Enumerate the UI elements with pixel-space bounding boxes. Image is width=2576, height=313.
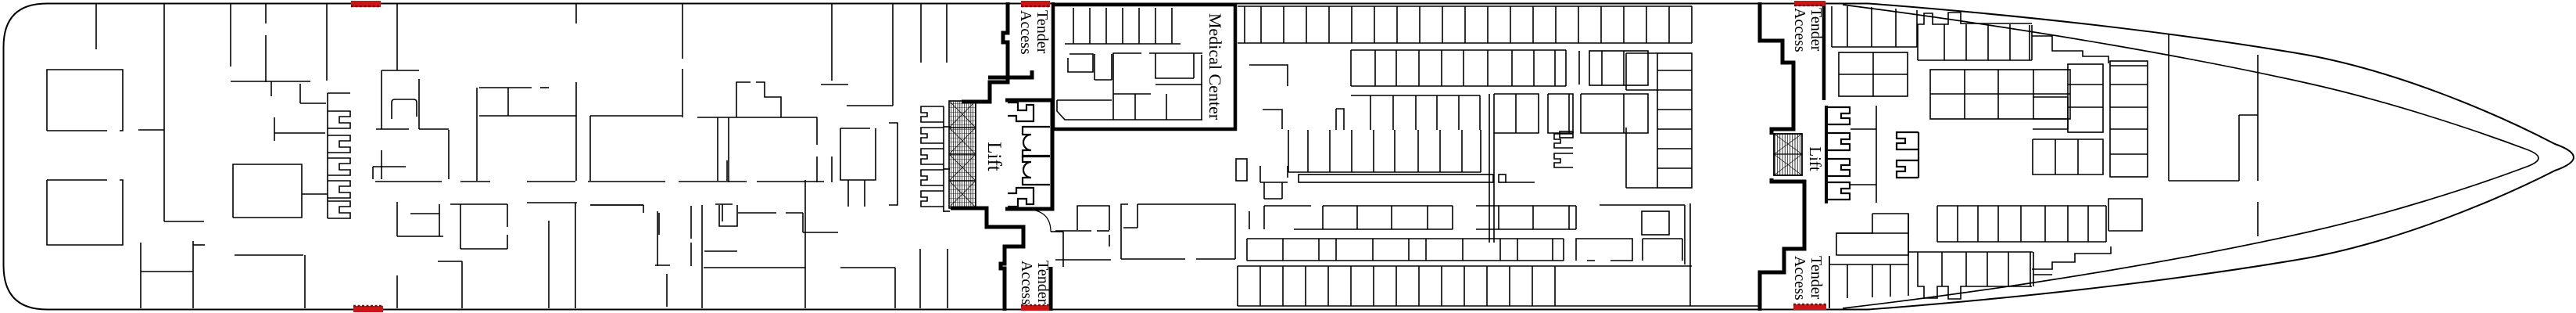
svg-text:Tender: Tender	[1034, 261, 1052, 304]
svg-text:Medical Center: Medical Center	[1206, 13, 1225, 121]
svg-text:Lift: Lift	[1806, 146, 1825, 171]
svg-text:Tender: Tender	[1807, 256, 1825, 300]
svg-text:Access: Access	[1017, 10, 1034, 55]
svg-text:Lift: Lift	[983, 142, 1005, 171]
svg-text:Access: Access	[1791, 256, 1808, 300]
svg-text:Tender: Tender	[1034, 10, 1051, 54]
svg-text:Access: Access	[1791, 8, 1808, 52]
svg-text:Tender: Tender	[1807, 8, 1825, 52]
svg-text:Access: Access	[1018, 261, 1035, 305]
